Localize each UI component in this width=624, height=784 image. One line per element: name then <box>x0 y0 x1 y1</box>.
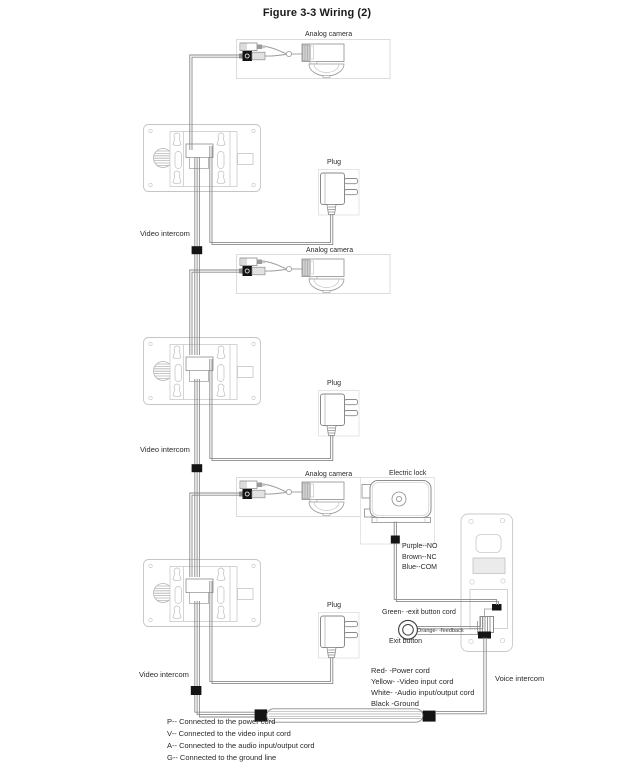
intercom-cable-notes: Red- -Power cord Yellow- -Video input co… <box>371 665 474 709</box>
electric-lock-label: Electric lock <box>389 470 426 478</box>
plug-1 <box>319 170 360 216</box>
video-intercom-1 <box>144 125 261 192</box>
figure-title: Figure 3-3 Wiring (2) <box>5 7 624 19</box>
plug-2 <box>319 391 360 437</box>
analog-camera-label-2: Analog camera <box>306 247 353 255</box>
cable-note-yellow: Yellow- -Video input cord <box>371 676 474 687</box>
plug-3 <box>319 613 360 659</box>
voice-intercom <box>461 514 513 652</box>
cable-note-white: White- -Audio input/output cord <box>371 687 474 698</box>
electric-lock <box>361 478 435 545</box>
lock-wire-notes: Purple--NO Brown--NC Blue--COM <box>402 542 437 574</box>
lock-wire-note-purple: Purple--NO <box>402 542 437 553</box>
plug-label-1: Plug <box>327 159 341 167</box>
lock-wire-note-brown: Brown--NC <box>402 553 437 564</box>
wiring-legend: P-- Connected to the power cord V-- Conn… <box>167 716 315 764</box>
cable-note-red: Red- -Power cord <box>371 665 474 676</box>
legend-line-ground: G-- Connected to the ground line <box>167 752 315 764</box>
video-intercom-label-2: Video intercom <box>140 446 190 454</box>
voice-intercom-label: Voice intercom <box>495 675 544 683</box>
combined-cable-connector-right <box>423 711 436 722</box>
wiring-diagram-graphic <box>0 0 624 784</box>
cable-note-black: Black -Ground <box>371 698 474 709</box>
trunk-connector-2 <box>192 464 203 472</box>
analog-camera-label-1: Analog camera <box>305 31 352 39</box>
plug-label-2: Plug <box>327 380 341 388</box>
exit-button-cord-label: Green- -exit button cord <box>382 609 456 617</box>
analog-camera-label-3: Analog camera <box>305 471 352 479</box>
exit-button <box>399 620 418 639</box>
analog-camera-1 <box>237 40 391 79</box>
video-intercom-label-3: Video intercom <box>139 671 189 679</box>
video-intercom-3 <box>144 560 261 627</box>
video-intercom-label-1: Video intercom <box>140 230 190 238</box>
lock-wire-note-blue: Blue--COM <box>402 563 437 574</box>
feedback-label: Orange- -feedback <box>417 628 464 634</box>
trunk-connector-3 <box>191 686 202 695</box>
cable-connectors <box>191 246 400 695</box>
plug-label-3: Plug <box>327 602 341 610</box>
trunk-connector-1 <box>192 246 203 254</box>
legend-line-power: P-- Connected to the power cord <box>167 716 315 728</box>
legend-line-video: V-- Connected to the video input cord <box>167 728 315 740</box>
wiring-diagram-page: Figure 3-3 Wiring (2) Analog camera Anal… <box>0 0 624 784</box>
analog-camera-2 <box>237 255 391 294</box>
exit-button-label: Exit button <box>389 638 422 646</box>
trunk-cable-2 <box>195 379 200 577</box>
legend-line-audio: A-- Connected to the audio input/output … <box>167 740 315 752</box>
lock-cable-connector <box>391 536 400 544</box>
video-intercom-2 <box>144 338 261 405</box>
